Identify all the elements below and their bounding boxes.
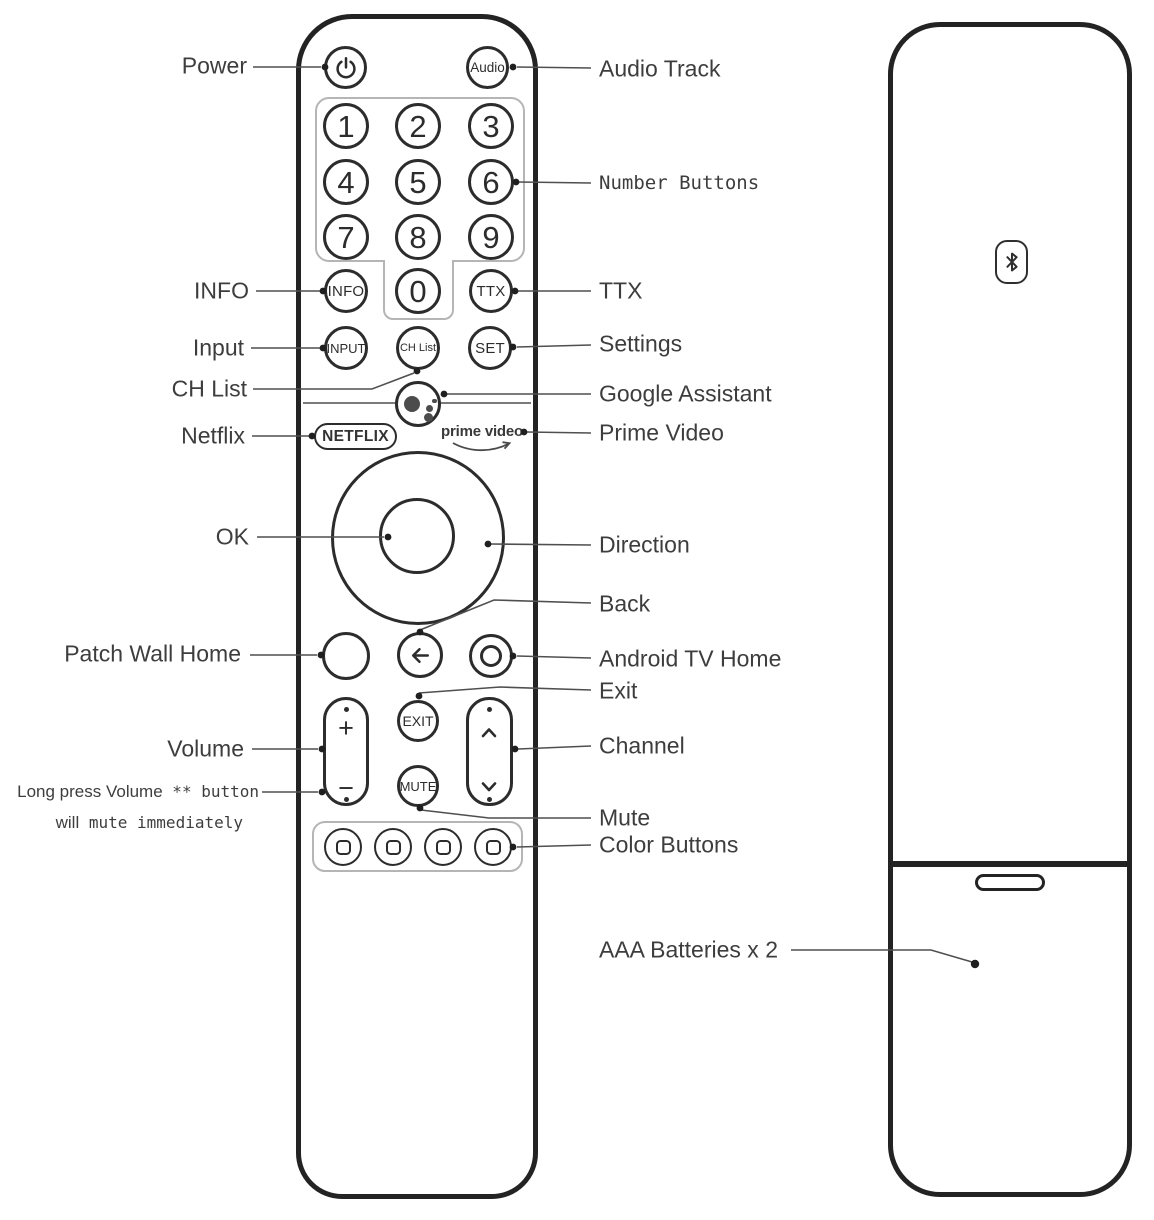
back-arrow-icon	[407, 642, 434, 669]
prime-video-button[interactable]: prime video	[437, 423, 527, 455]
color-button-glyph	[436, 840, 451, 855]
exit-button[interactable]: EXIT	[397, 700, 439, 742]
color-button-glyph	[386, 840, 401, 855]
rocker-dot	[487, 707, 492, 712]
label-back: Back	[599, 591, 650, 618]
input-button-label: INPUT	[327, 342, 366, 355]
back-button[interactable]	[397, 632, 443, 678]
set-button-label: SET	[475, 341, 505, 356]
bluetooth-glyph	[1004, 250, 1020, 274]
volume-rocker[interactable]: + −	[323, 697, 369, 806]
digit-9-button[interactable]: 9	[468, 214, 514, 260]
google-assistant-dots-icon	[432, 399, 437, 404]
label-color-buttons: Color Buttons	[599, 832, 738, 859]
color-button-glyph	[336, 840, 351, 855]
color-button-3[interactable]	[424, 828, 462, 866]
bluetooth-icon	[995, 240, 1028, 284]
label-input: Input	[193, 335, 244, 362]
digit-label: 9	[482, 222, 499, 253]
netflix-button[interactable]: NETFLIX	[314, 423, 397, 450]
digit-5-button[interactable]: 5	[395, 159, 441, 205]
digit-3-button[interactable]: 3	[468, 103, 514, 149]
label-channel: Channel	[599, 733, 685, 760]
digit-0-button[interactable]: 0	[395, 268, 441, 314]
chevron-up-icon	[480, 726, 498, 739]
ring-icon	[480, 645, 502, 667]
rocker-dot	[487, 797, 492, 802]
color-button-1[interactable]	[324, 828, 362, 866]
digit-4-button[interactable]: 4	[323, 159, 369, 205]
digit-6-button[interactable]: 6	[468, 159, 514, 205]
label-settings: Settings	[599, 331, 682, 358]
digit-label: 2	[409, 111, 426, 142]
netflix-button-label: NETFLIX	[322, 428, 389, 446]
note-text-mono: ** button	[163, 782, 259, 801]
rocker-dot	[344, 707, 349, 712]
ttx-button[interactable]: TTX	[469, 269, 513, 313]
label-number-buttons: Number Buttons	[599, 172, 759, 194]
label-aaa-batteries: AAA Batteries x 2	[599, 937, 778, 964]
label-audio-track: Audio Track	[599, 56, 720, 83]
google-assistant-dots-icon	[404, 396, 420, 412]
digit-label: 4	[337, 167, 354, 198]
volume-up-label: +	[338, 715, 354, 742]
audio-button-label: Audio	[470, 61, 505, 75]
android-tv-home-button[interactable]	[469, 634, 513, 678]
remote-back-body	[888, 22, 1132, 1197]
chevron-down-icon	[480, 780, 498, 793]
digit-label: 0	[409, 276, 426, 307]
digit-label: 1	[337, 111, 354, 142]
label-ok: OK	[216, 524, 249, 551]
label-volume: Volume	[167, 736, 244, 763]
input-button[interactable]: INPUT	[324, 326, 368, 370]
digit-1-button[interactable]: 1	[323, 103, 369, 149]
google-assistant-button[interactable]	[395, 381, 441, 427]
label-google-assistant: Google Assistant	[599, 381, 772, 408]
ttx-button-label: TTX	[477, 284, 506, 299]
set-button[interactable]: SET	[468, 326, 512, 370]
digit-label: 8	[409, 222, 426, 253]
label-ttx: TTX	[599, 278, 642, 305]
channel-rocker[interactable]	[466, 697, 513, 806]
note-text: will	[56, 813, 80, 832]
exit-button-label: EXIT	[402, 714, 433, 728]
google-assistant-dots-icon	[426, 405, 433, 412]
prime-video-label: prime video	[437, 423, 527, 440]
smile-arrow-icon	[443, 440, 521, 455]
digit-2-button[interactable]: 2	[395, 103, 441, 149]
digit-label: 5	[409, 167, 426, 198]
patch-wall-home-button[interactable]	[322, 632, 370, 680]
digit-label: 7	[337, 222, 354, 253]
label-info: INFO	[194, 278, 249, 305]
label-prime-video: Prime Video	[599, 420, 724, 447]
label-direction: Direction	[599, 532, 690, 559]
battery-cover-divider	[890, 861, 1130, 867]
digit-8-button[interactable]: 8	[395, 214, 441, 260]
info-button[interactable]: INFO	[324, 269, 368, 313]
ch-list-button[interactable]: CH List	[396, 326, 440, 370]
label-android-tv-home: Android TV Home	[599, 646, 781, 673]
color-button-glyph	[486, 840, 501, 855]
ok-button[interactable]	[379, 498, 455, 574]
label-power: Power	[182, 53, 247, 80]
digit-label: 6	[482, 167, 499, 198]
battery-cover-notch[interactable]	[975, 874, 1045, 891]
label-volume-note-line1: Long press Volume ** button	[17, 782, 259, 802]
mute-button[interactable]: MUTE	[397, 765, 439, 807]
label-mute: Mute	[599, 805, 650, 832]
note-text: Long press Volume	[17, 782, 163, 801]
label-patch-wall-home: Patch Wall Home	[64, 641, 241, 668]
remote-diagram: Audio 1 2 3 4 5 6 7 8 9 INFO 0 TTX INPUT…	[0, 0, 1154, 1220]
digit-label: 3	[482, 111, 499, 142]
rocker-dot	[344, 797, 349, 802]
power-button[interactable]	[324, 46, 367, 89]
google-assistant-dots-icon	[424, 413, 433, 422]
mute-button-label: MUTE	[400, 780, 437, 793]
color-button-4[interactable]	[474, 828, 512, 866]
ch-list-button-label: CH List	[400, 343, 436, 354]
label-ch-list: CH List	[172, 376, 247, 403]
digit-7-button[interactable]: 7	[323, 214, 369, 260]
power-icon	[333, 55, 359, 81]
color-button-2[interactable]	[374, 828, 412, 866]
label-exit: Exit	[599, 678, 637, 705]
audio-track-button[interactable]: Audio	[466, 46, 509, 89]
label-netflix: Netflix	[181, 423, 245, 450]
label-volume-note-line2: will mute immediately	[56, 813, 243, 833]
note-text-mono: mute immediately	[79, 813, 243, 832]
info-button-label: INFO	[328, 284, 365, 299]
